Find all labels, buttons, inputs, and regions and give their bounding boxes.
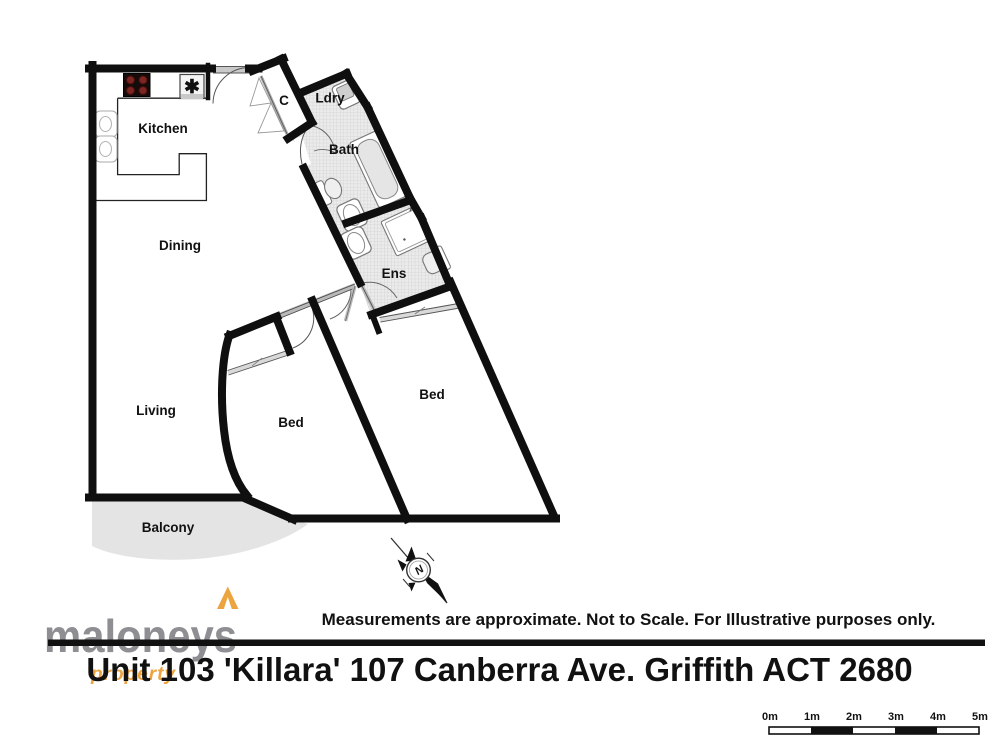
svg-text:3m: 3m [888,711,904,723]
svg-text:2m: 2m [846,711,862,723]
svg-text:Bath: Bath [329,142,359,157]
svg-text:Balcony: Balcony [142,520,195,535]
svg-text:5m: 5m [972,711,988,723]
svg-text:C: C [279,93,289,108]
svg-text:Kitchen: Kitchen [138,121,188,136]
svg-text:✱: ✱ [184,77,200,98]
svg-text:Living: Living [136,403,176,418]
svg-text:Ldry: Ldry [315,91,345,106]
svg-text:0m: 0m [762,711,778,723]
svg-text:Bed: Bed [278,415,304,430]
svg-text:Dining: Dining [159,238,201,253]
svg-text:Unit 103 'Killara' 107 Canberr: Unit 103 'Killara' 107 Canberra Ave. Gri… [86,651,912,688]
svg-text:1m: 1m [804,711,820,723]
svg-text:Bed: Bed [419,387,445,402]
svg-text:4m: 4m [930,711,946,723]
svg-text:Ens: Ens [382,266,407,281]
svg-text:Measurements are approximate.: Measurements are approximate. Not to Sca… [322,610,936,629]
